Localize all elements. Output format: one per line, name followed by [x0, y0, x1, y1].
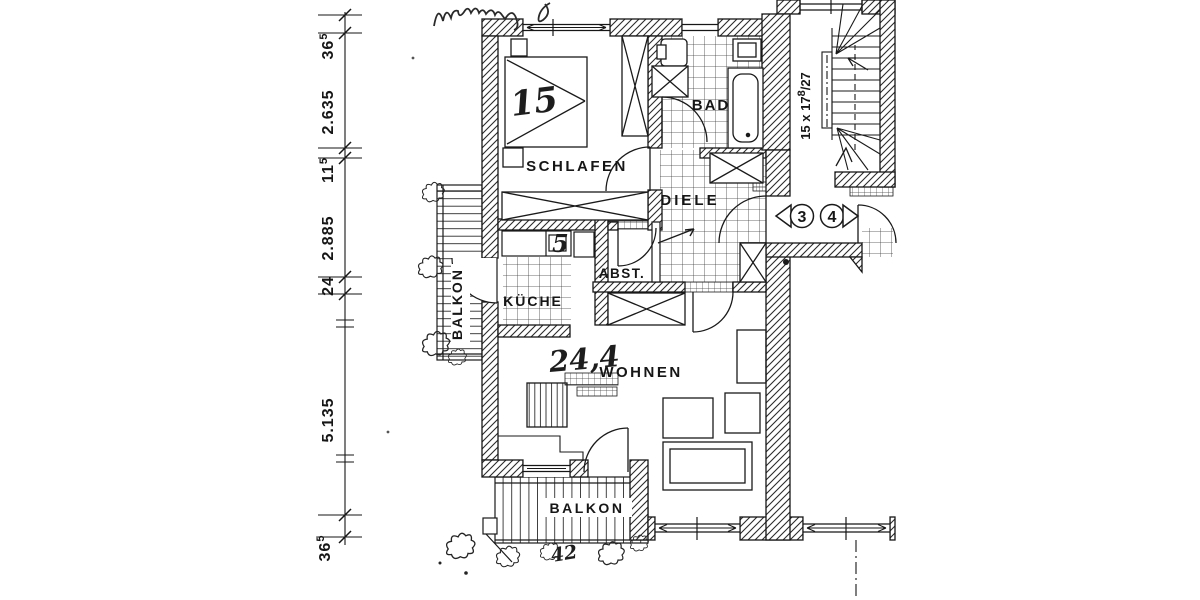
- stair-label: 15 x 178/27: [796, 72, 813, 140]
- stair-arrow-up: [836, 148, 852, 166]
- unit4-number: 4: [828, 209, 837, 226]
- wall-segment: [766, 245, 790, 540]
- kitchen-fridge: [574, 232, 594, 257]
- wardrobe: [710, 153, 763, 183]
- room-abst: [618, 228, 656, 266]
- speck: [387, 431, 390, 434]
- sink: [733, 39, 761, 61]
- neighbor-hall-tiles: [862, 228, 893, 257]
- wall-segment: [766, 243, 862, 257]
- wall-segment: [482, 36, 498, 258]
- bathtub: [728, 68, 763, 148]
- dimension-label: 365: [318, 33, 337, 60]
- label-abst: ABST.: [599, 266, 646, 281]
- annotation-kueche-number: 5: [552, 229, 569, 258]
- unit4-arrow-icon: [843, 205, 858, 227]
- door-arc-wohnen: [693, 292, 733, 332]
- annotation-wohnen-area: 24,4: [547, 339, 621, 379]
- speck: [464, 571, 468, 575]
- wall-segment: [733, 282, 766, 292]
- dimension-label: 5.135: [320, 397, 337, 442]
- wall-segment: [608, 222, 618, 230]
- annotation-bed-number: 15: [508, 79, 560, 124]
- floor-step-line: [498, 436, 583, 461]
- dimension-labels: 365 2.635 115 2.885 24 5.135 365: [315, 33, 337, 562]
- wall-segment: [630, 460, 648, 540]
- plant-sketch: [599, 542, 625, 565]
- unit3-arrow-icon: [776, 205, 791, 227]
- wall-segment: [880, 0, 895, 187]
- annotation-balkon-note: 42: [549, 541, 579, 567]
- window-neighbor-south: [803, 517, 890, 540]
- wardrobe: [622, 36, 648, 136]
- wall-segment: [762, 14, 790, 150]
- balcony-post: [483, 518, 497, 534]
- nightstand: [511, 39, 527, 56]
- dimension-label: 24: [320, 276, 337, 296]
- label-kueche: KÜCHE: [503, 293, 563, 309]
- wall-segment: [482, 460, 523, 477]
- window-wohnen-south: [655, 517, 740, 540]
- stair-arrow-exit: [848, 58, 868, 70]
- wall-segment: [890, 517, 895, 540]
- wall-segment: [648, 517, 655, 540]
- side-table: [725, 393, 760, 433]
- window-stairwell: [800, 0, 862, 14]
- window-wohnen-sw: [523, 460, 570, 477]
- wall-segment: [498, 325, 570, 337]
- dresser: [502, 192, 648, 220]
- dimension-label: 2.885: [320, 215, 337, 260]
- shaft-box: [652, 66, 688, 97]
- staircase: 15 x 178/27: [796, 4, 880, 170]
- label-diele: DIELE: [660, 192, 719, 209]
- label-bad: BAD: [692, 97, 731, 114]
- kueche-floor-tiles: [503, 257, 571, 327]
- wall-segment: [777, 0, 800, 14]
- plant-sketch: [447, 533, 475, 558]
- nightstand: [503, 148, 523, 167]
- door-knob: [783, 259, 789, 265]
- stair-winders-bottom: [837, 128, 880, 170]
- dimension-label: 365: [315, 535, 334, 562]
- door-arc-abst: [618, 228, 656, 266]
- cupboard: [737, 330, 766, 383]
- wardrobe: [608, 293, 685, 325]
- toilet: [657, 39, 687, 66]
- floor-plan-page: 15 x 178/27 3 4 SCHLAFEN BAD DIELE ABST.…: [0, 0, 1200, 600]
- wall-segment: [610, 19, 682, 36]
- window-schlafen: [523, 19, 610, 36]
- speck: [439, 562, 442, 565]
- wall-segment: [835, 172, 895, 187]
- wall-segment: [482, 302, 498, 460]
- label-balkon-left: BALKON: [449, 268, 465, 340]
- wardrobe: [740, 243, 766, 282]
- room-schlafen: [502, 36, 650, 220]
- door-arc-balcony-bottom: [584, 428, 628, 472]
- floor-plan-drawing: 15 x 178/27 3 4 SCHLAFEN BAD DIELE ABST.…: [0, 0, 1200, 600]
- threshold-tiles: [685, 282, 733, 292]
- dimension-label: 115: [318, 157, 337, 183]
- window-bad: [682, 19, 718, 36]
- dimension-chain: 365 2.635 115 2.885 24 5.135 365: [315, 9, 362, 561]
- wall-segment: [593, 282, 685, 292]
- dimension-ticks: [318, 9, 362, 543]
- wall-segment: [850, 257, 862, 272]
- speck: [412, 57, 415, 60]
- stair-threshold-tiles: [850, 187, 893, 196]
- dimension-label: 2.635: [320, 89, 337, 134]
- label-balkon-bottom: BALKON: [550, 500, 625, 516]
- label-schlafen: SCHLAFEN: [526, 158, 628, 175]
- sofa: [663, 442, 752, 490]
- threshold-tiles: [577, 387, 617, 396]
- coffee-table: [663, 398, 713, 438]
- unit3-number: 3: [798, 209, 807, 226]
- wall-segment: [766, 150, 790, 196]
- bookshelf: [527, 383, 567, 427]
